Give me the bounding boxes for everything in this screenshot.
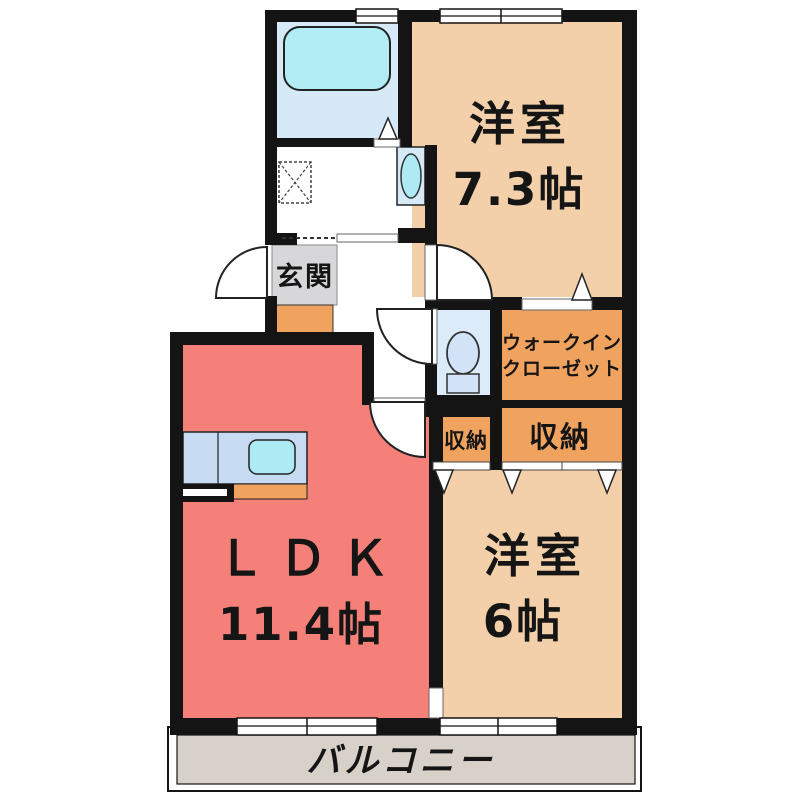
walk-in-closet-label-line2: クローゼット [502,357,622,380]
entrance-step [272,305,333,335]
balcony-label: バルコニー [306,741,495,781]
apartment-floorplan: 玄関 洋室 7.3帖 ウォークイン クローゼット 収納 収納 ＬＤＫ 11.4帖… [0,0,800,800]
wall-segment [562,10,622,22]
ldk-label: ＬＤＫ [217,531,403,587]
entrance-label: 玄関 [276,261,334,293]
kitchen-counter [172,432,307,502]
western-room-6-size: 6帖 [483,595,563,648]
wall-segment [398,228,437,243]
wall-segment [170,332,362,345]
ldk-size: 11.4帖 [218,598,384,651]
western-room-73-size: 7.3帖 [453,163,586,216]
bathtub [284,27,390,90]
washbasin [397,147,425,205]
wall-segment [622,10,637,735]
walk-in-closet-label-line1: ウォークイン [502,332,622,354]
western-room-6-floor [443,470,622,718]
storage-small-door [433,462,490,470]
bath-door-opening [374,139,400,147]
wall-segment [398,10,412,147]
wall-segment [502,400,622,408]
toilet-fixture [447,332,479,393]
wall-segment [429,405,443,688]
wall-segment [170,332,183,735]
storage-large-door-left [502,462,562,470]
wall-segment [490,297,502,470]
doorway-western-room-73 [425,245,437,300]
entrance-door-swing [216,247,267,298]
walk-in-closet-floor [502,310,622,400]
floorplan-canvas: 玄関 洋室 7.3帖 ウォークイン クローゼット 収納 収納 ＬＤＫ 11.4帖… [0,0,800,800]
sliding-door-ldk-room6 [429,688,443,718]
wall-segment [265,10,360,22]
washing-machine-space [279,162,311,203]
opening [337,234,398,242]
storage-large-label: 収納 [529,420,591,454]
wall-segment [362,332,374,405]
kitchen-sink [249,440,295,474]
wall-segment [277,138,374,147]
storage-large-door-right [562,462,622,470]
wall-segment [592,297,622,310]
wall-segment [265,10,277,245]
western-room-6-label: 洋室 [484,529,586,583]
wall-segment [400,138,412,147]
western-room-73-label: 洋室 [469,97,571,151]
storage-small-label: 収納 [444,429,488,453]
